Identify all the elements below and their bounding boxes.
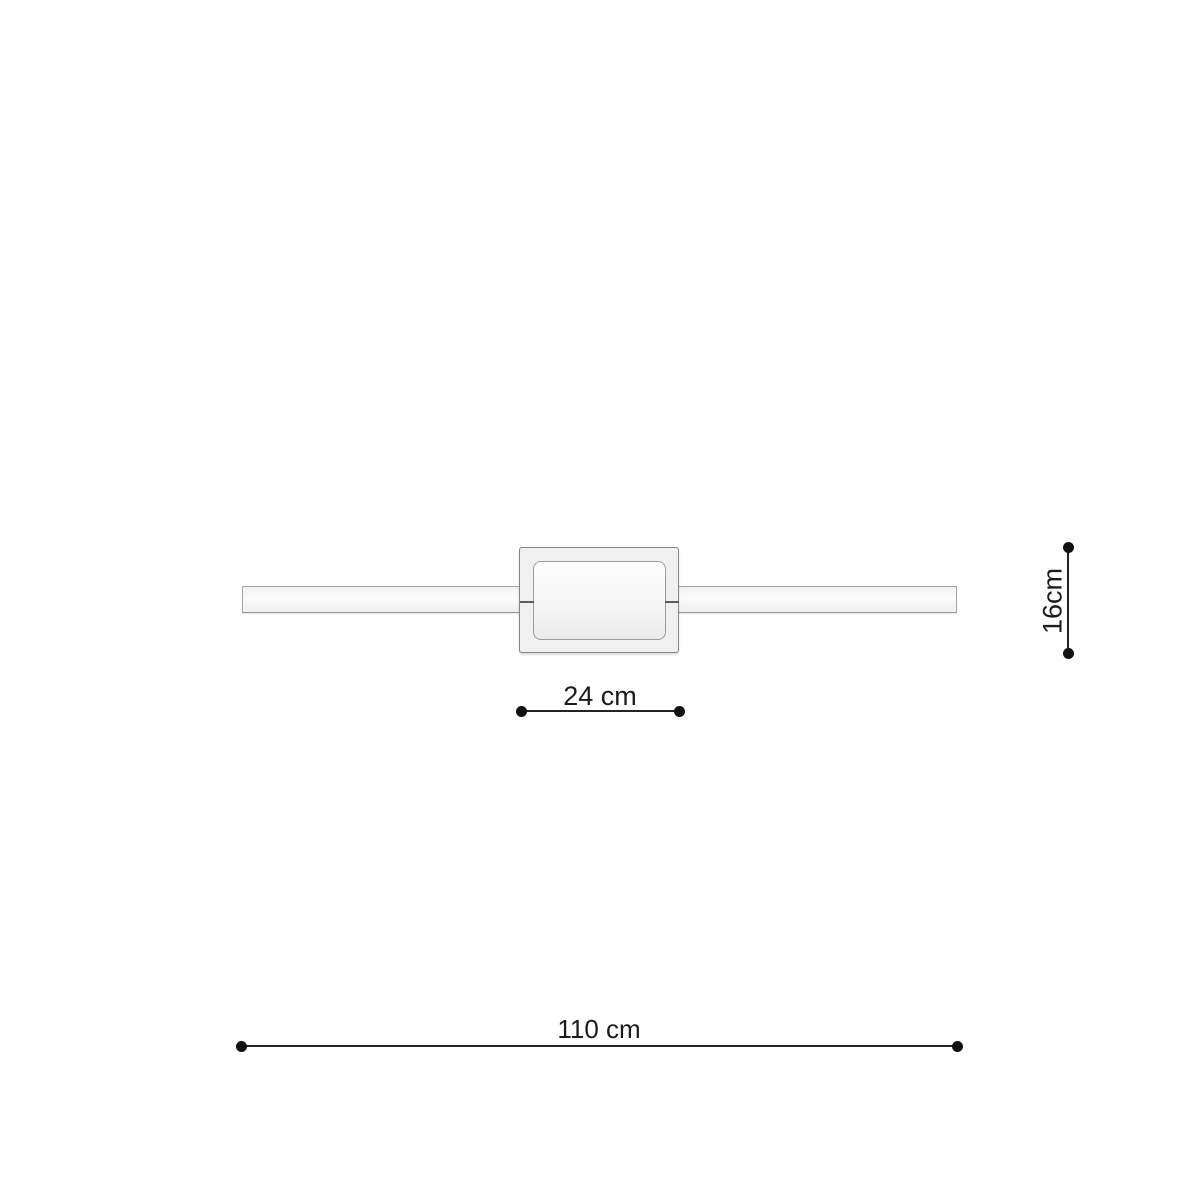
seam-line-left — [520, 601, 534, 603]
dimension-line-total-length — [241, 1045, 957, 1047]
dimension-label-box-height: 16cm — [1040, 568, 1067, 634]
dimension-diagram: 24 cm 16cm 110 cm — [0, 0, 1200, 1200]
dimension-label-total-length: 110 cm — [240, 1016, 958, 1042]
dimension-endpoint-dot — [1063, 542, 1074, 553]
dimension-endpoint-dot — [1063, 648, 1074, 659]
dimension-label-box-width: 24 cm — [520, 683, 680, 710]
mount-inner-panel-shape — [533, 561, 666, 640]
seam-line-right — [665, 601, 679, 603]
dimension-endpoint-dot — [952, 1041, 963, 1052]
dimension-endpoint-dot — [236, 1041, 247, 1052]
